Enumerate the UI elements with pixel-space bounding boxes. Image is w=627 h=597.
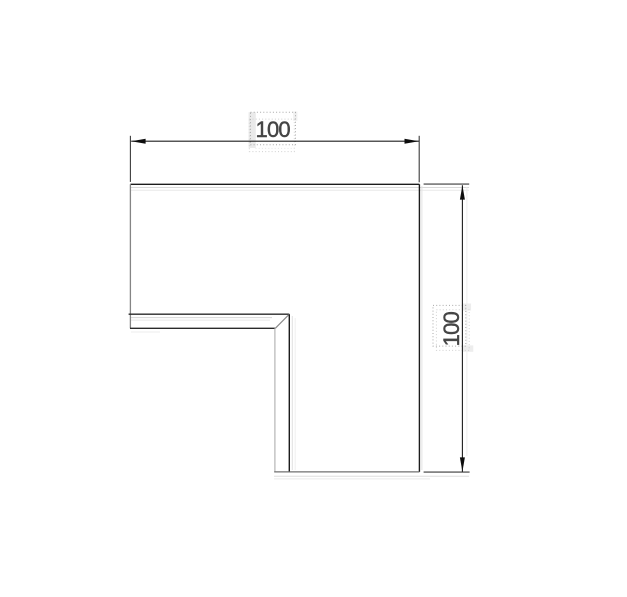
svg-text:100: 100: [439, 311, 464, 346]
svg-text:100: 100: [255, 117, 290, 142]
